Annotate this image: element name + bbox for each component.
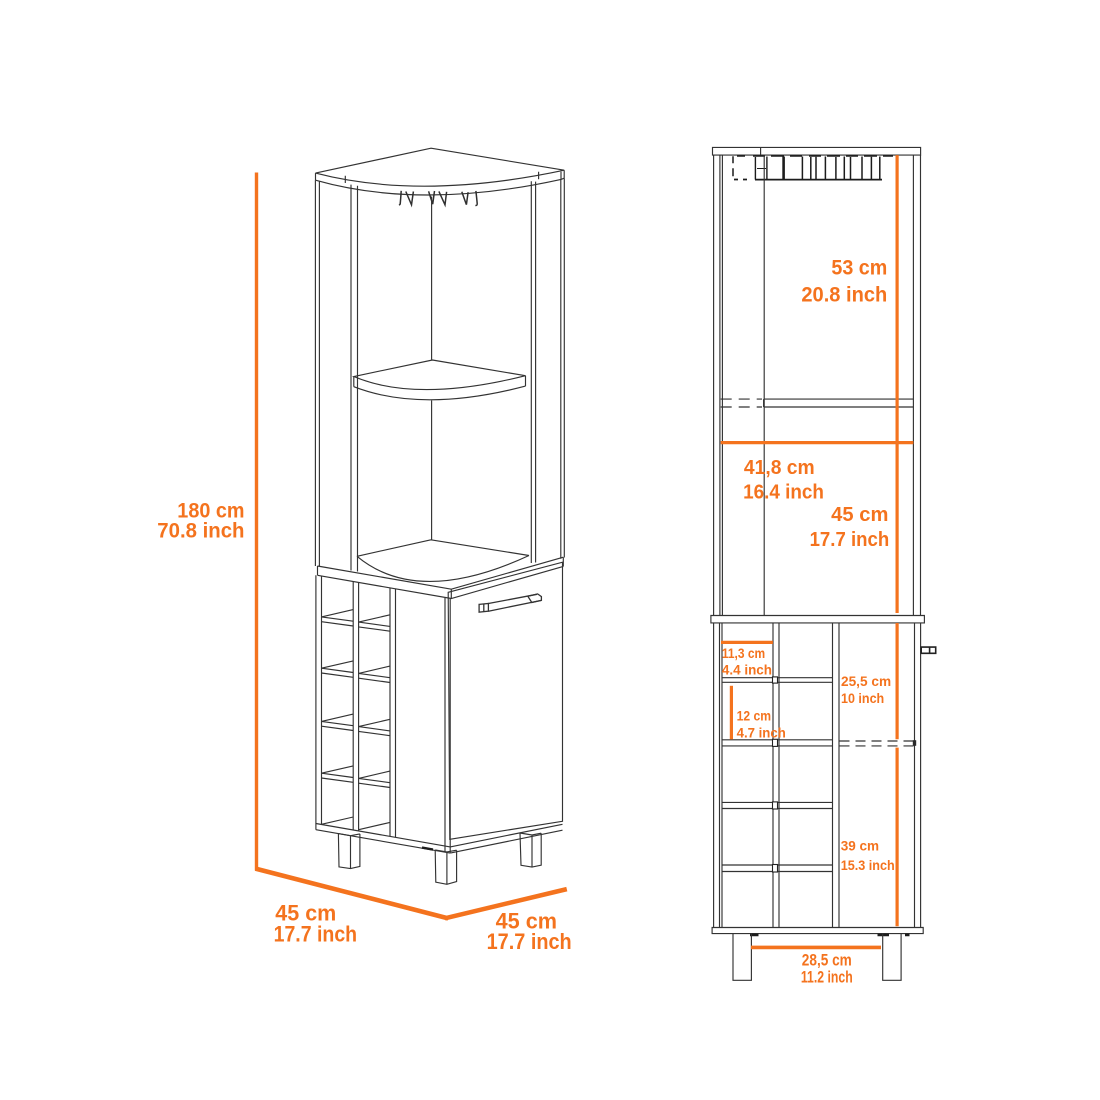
svg-text:4.4 inch: 4.4 inch (722, 663, 772, 679)
svg-text:70.8 inch: 70.8 inch (157, 519, 244, 543)
svg-text:17.7 inch: 17.7 inch (487, 929, 572, 954)
svg-text:45 cm: 45 cm (831, 504, 888, 526)
svg-text:53 cm: 53 cm (831, 256, 887, 279)
svg-text:25,5 cm: 25,5 cm (841, 674, 891, 689)
svg-text:20.8 inch: 20.8 inch (801, 283, 887, 306)
svg-text:12 cm: 12 cm (737, 708, 771, 724)
svg-text:17.7 inch: 17.7 inch (810, 529, 890, 551)
svg-text:28,5 cm: 28,5 cm (802, 951, 852, 970)
svg-text:10 inch: 10 inch (841, 691, 884, 706)
svg-text:39 cm: 39 cm (841, 839, 879, 854)
svg-text:16.4 inch: 16.4 inch (743, 482, 824, 504)
svg-text:17.7 inch: 17.7 inch (274, 922, 358, 947)
svg-text:11,3 cm: 11,3 cm (722, 646, 765, 662)
svg-text:4.7 inch: 4.7 inch (737, 726, 786, 742)
svg-text:15.3 inch: 15.3 inch (841, 858, 895, 873)
svg-text:41,8 cm: 41,8 cm (744, 457, 815, 479)
svg-text:11.2 inch: 11.2 inch (801, 968, 853, 987)
